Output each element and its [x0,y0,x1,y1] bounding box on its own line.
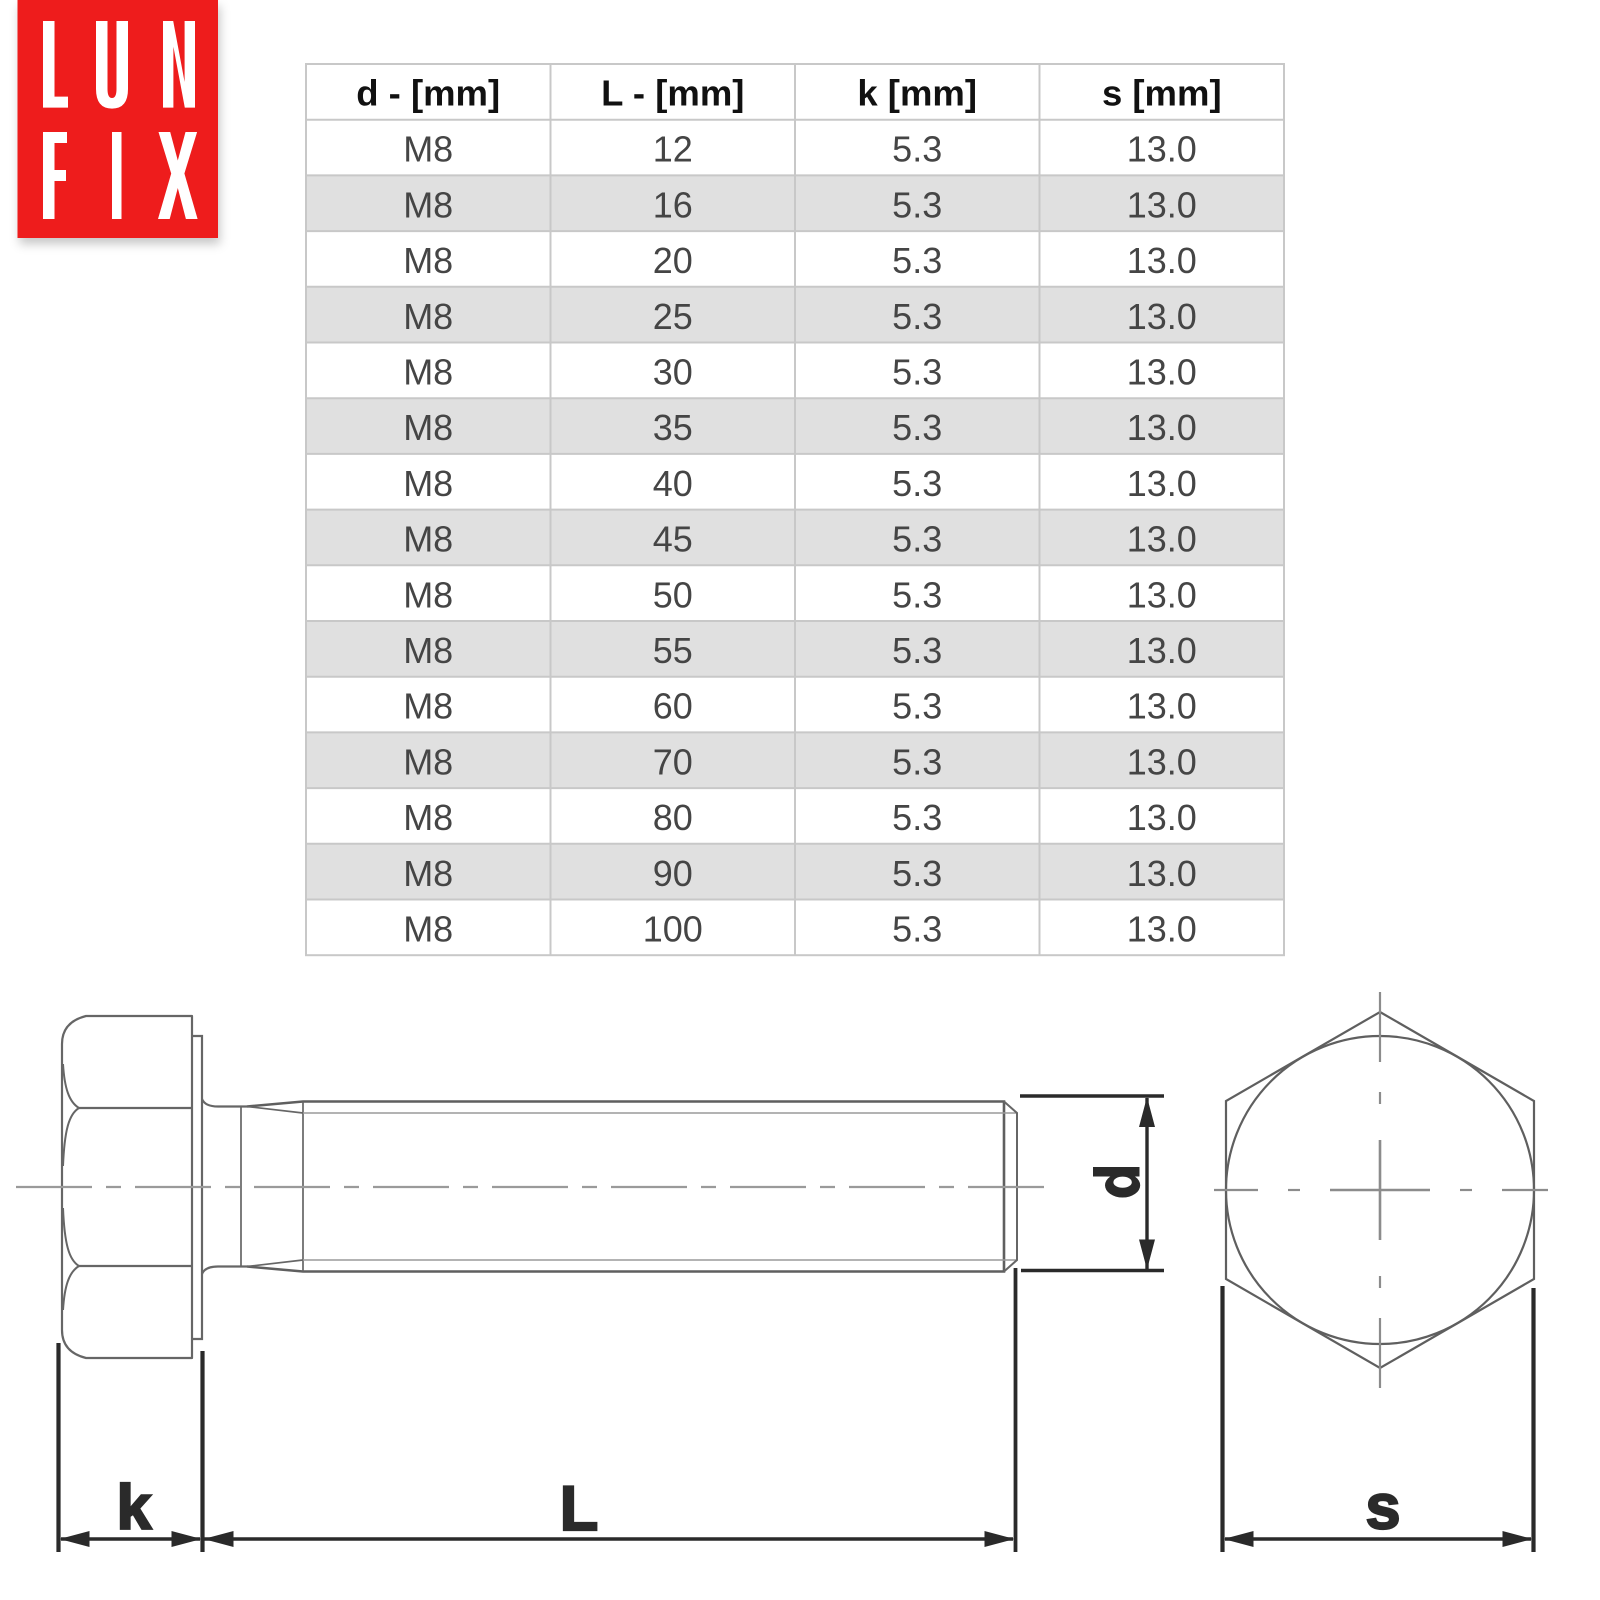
svg-text:55: 55 [653,630,693,671]
svg-text:L - [mm]: L - [mm] [601,73,744,114]
svg-text:5.3: 5.3 [892,240,942,281]
svg-text:5.3: 5.3 [892,519,942,560]
svg-text:13.0: 13.0 [1127,352,1197,393]
svg-text:13.0: 13.0 [1127,407,1197,448]
svg-text:M8: M8 [403,519,453,560]
svg-text:M8: M8 [403,463,453,504]
svg-text:13.0: 13.0 [1127,630,1197,671]
svg-text:5.3: 5.3 [892,797,942,838]
svg-text:100: 100 [643,909,703,950]
svg-text:50: 50 [653,574,693,615]
svg-text:5.3: 5.3 [892,741,942,782]
svg-text:13.0: 13.0 [1127,686,1197,727]
svg-text:k [mm]: k [mm] [857,73,977,114]
svg-text:d - [mm]: d - [mm] [356,73,500,114]
svg-text:k: k [116,1473,152,1543]
svg-text:M8: M8 [403,352,453,393]
svg-text:M8: M8 [403,574,453,615]
svg-text:M8: M8 [403,184,453,225]
svg-text:13.0: 13.0 [1127,519,1197,560]
svg-text:13.0: 13.0 [1127,574,1197,615]
svg-text:5.3: 5.3 [892,296,942,337]
svg-text:13.0: 13.0 [1127,129,1197,170]
svg-text:13.0: 13.0 [1127,741,1197,782]
svg-text:M8: M8 [403,741,453,782]
svg-text:s [mm]: s [mm] [1102,73,1222,114]
svg-text:13.0: 13.0 [1127,853,1197,894]
svg-text:5.3: 5.3 [892,407,942,448]
svg-text:M8: M8 [403,909,453,950]
svg-text:5.3: 5.3 [892,129,942,170]
svg-text:L: L [560,1474,598,1544]
svg-text:45: 45 [653,519,693,560]
svg-text:13.0: 13.0 [1127,296,1197,337]
svg-text:M8: M8 [403,407,453,448]
svg-text:80: 80 [653,797,693,838]
svg-text:13.0: 13.0 [1127,240,1197,281]
svg-text:5.3: 5.3 [892,574,942,615]
svg-text:5.3: 5.3 [892,463,942,504]
svg-text:5.3: 5.3 [892,686,942,727]
svg-text:5.3: 5.3 [892,853,942,894]
svg-text:5.3: 5.3 [892,630,942,671]
svg-text:16: 16 [653,184,693,225]
svg-text:5.3: 5.3 [892,184,942,225]
svg-text:5.3: 5.3 [892,352,942,393]
svg-text:5.3: 5.3 [892,909,942,950]
svg-text:20: 20 [653,240,693,281]
svg-text:13.0: 13.0 [1127,463,1197,504]
svg-text:35: 35 [653,407,693,448]
svg-text:13.0: 13.0 [1127,797,1197,838]
svg-text:40: 40 [653,463,693,504]
svg-text:M8: M8 [403,240,453,281]
svg-text:70: 70 [653,741,693,782]
svg-text:M8: M8 [403,853,453,894]
svg-text:M8: M8 [403,129,453,170]
svg-text:13.0: 13.0 [1127,184,1197,225]
svg-text:12: 12 [653,129,693,170]
svg-text:M8: M8 [403,296,453,337]
svg-text:M8: M8 [403,686,453,727]
svg-text:30: 30 [653,352,693,393]
svg-text:s: s [1365,1473,1400,1543]
svg-text:25: 25 [653,296,693,337]
svg-text:90: 90 [653,853,693,894]
svg-text:M8: M8 [403,630,453,671]
svg-text:13.0: 13.0 [1127,909,1197,950]
svg-text:60: 60 [653,686,693,727]
svg-text:M8: M8 [403,797,453,838]
